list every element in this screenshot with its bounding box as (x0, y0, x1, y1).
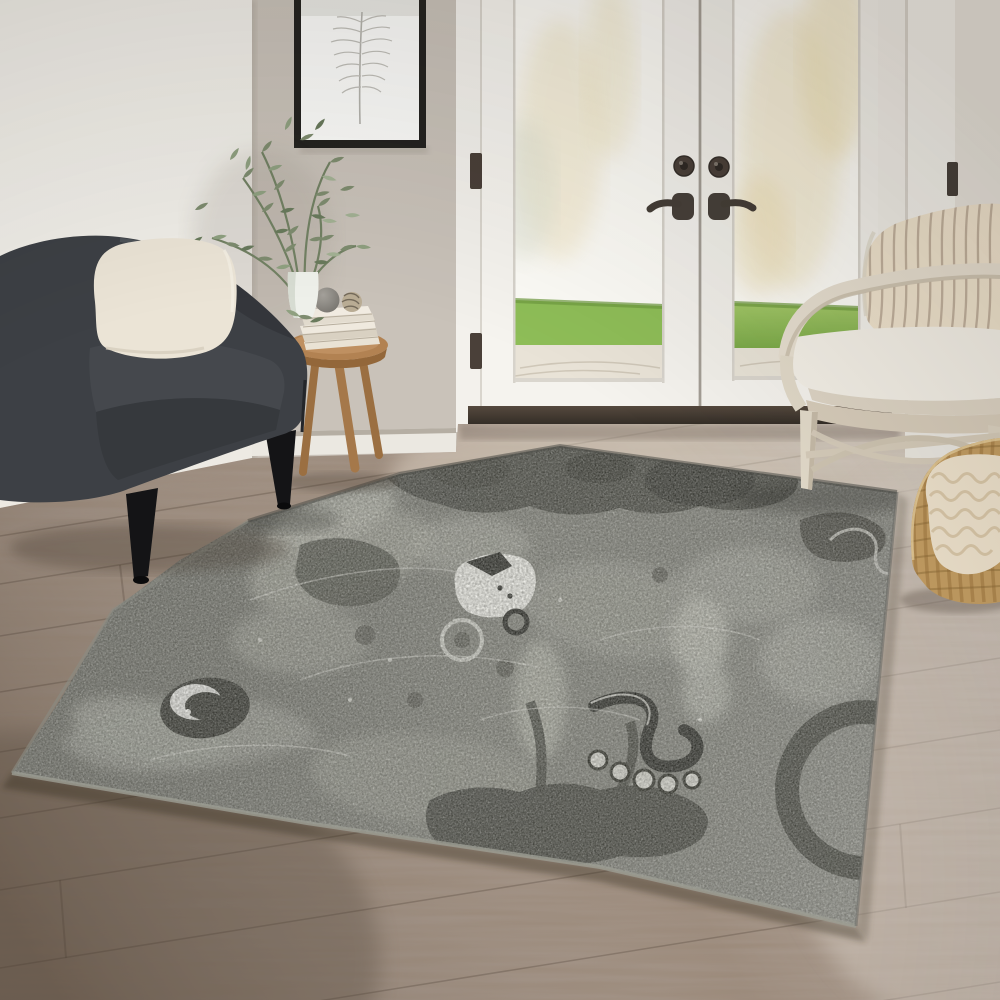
vignette (0, 0, 1000, 1000)
living-room-photo (0, 0, 1000, 1000)
photo-canvas (0, 0, 1000, 1000)
